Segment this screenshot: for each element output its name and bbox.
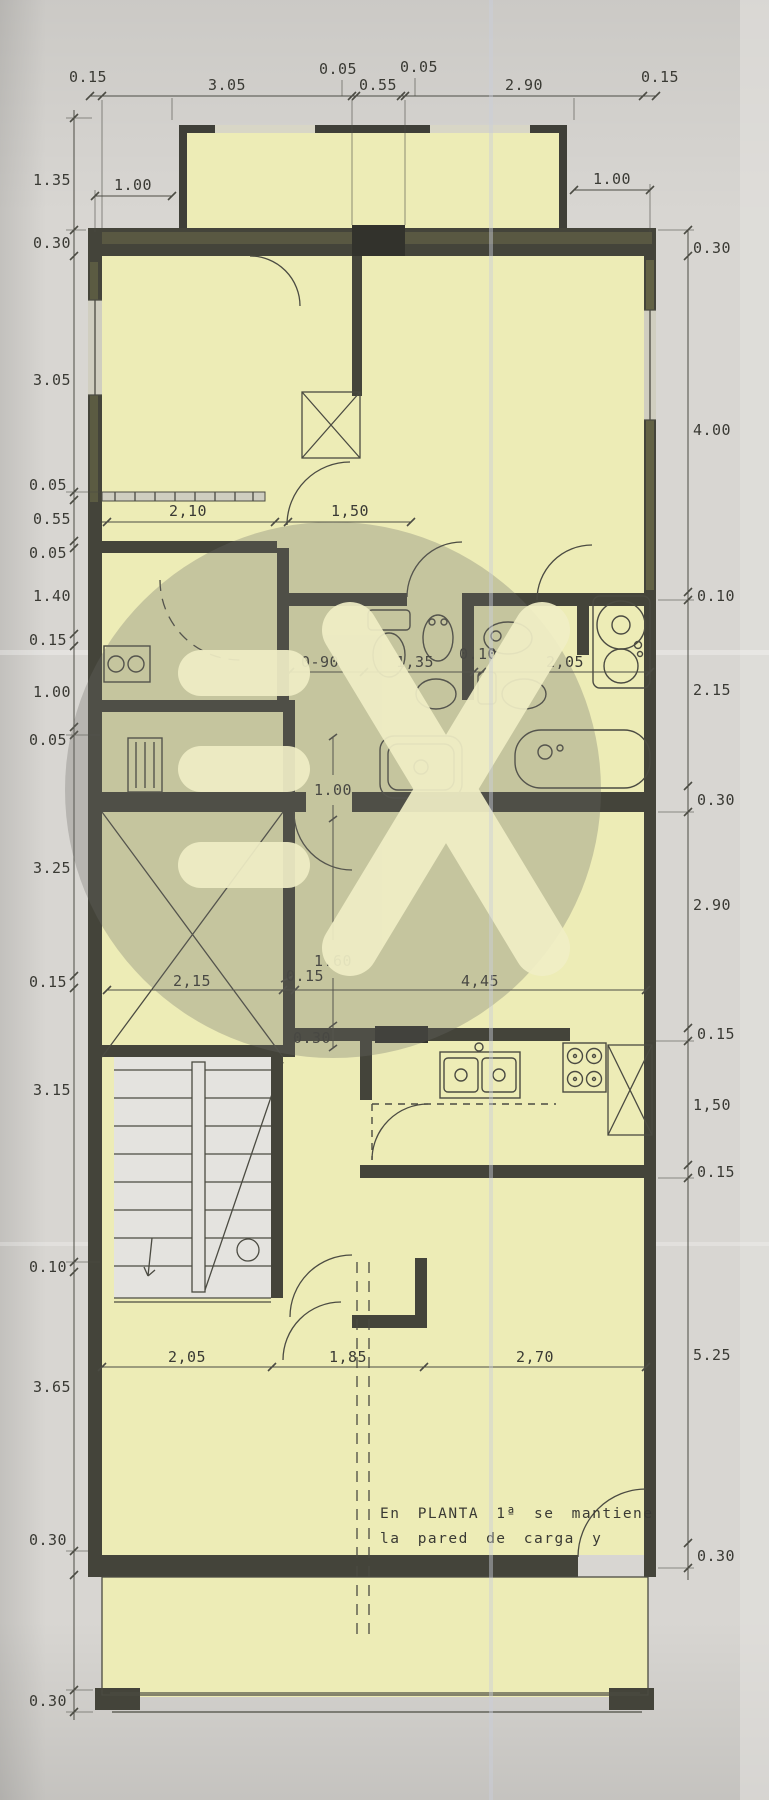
plan-note-line1: En PLANTA 1ª se mantiene (380, 1506, 654, 1522)
rear-wall-left (90, 1555, 578, 1577)
dim-label: 0.15 (29, 631, 67, 649)
stair-top-wall (102, 1045, 283, 1057)
dim-label: 3.65 (33, 1378, 71, 1396)
dim-label: 3.25 (33, 859, 71, 877)
dim-label: 1.35 (33, 171, 71, 189)
dim-label: 1.00 (593, 170, 631, 188)
rear-wall-right (646, 1555, 656, 1577)
vestibule-wall-stub (415, 1258, 427, 1328)
dim-label: 3.05 (208, 76, 246, 94)
watermark-circle (65, 522, 601, 1058)
dim-label: 3.05 (33, 371, 71, 389)
dim-label: 0.55 (33, 510, 71, 528)
dim-label: 2,70 (516, 1348, 554, 1366)
bedroom-divider-wall (352, 256, 362, 396)
stair-right-wall (271, 1057, 283, 1298)
watermark (65, 522, 601, 1058)
dim-label: 2.90 (505, 76, 543, 94)
dim-label: 0.05 (319, 60, 357, 78)
paper-fold-crease-vertical (489, 0, 493, 1800)
dim-label: 0.15 (29, 973, 67, 991)
dim-label: 0.30 (29, 1531, 67, 1549)
dim-label: 0.05 (400, 58, 438, 76)
dim-label: 1,50 (693, 1096, 731, 1114)
dim-label: 0.05 (29, 544, 67, 562)
dim-label: 0.10 (29, 1258, 67, 1276)
dim-label: 0.30 (697, 791, 735, 809)
bath-lobby-wall (577, 606, 589, 655)
dim-label: 0.55 (359, 76, 397, 94)
bay-window-left (215, 125, 315, 133)
dim-label: 1.00 (114, 176, 152, 194)
terrace-stub-right (609, 1688, 654, 1710)
dim-label: 1.40 (33, 587, 71, 605)
dim-label: 0.05 (29, 731, 67, 749)
dim-label: 2.90 (693, 896, 731, 914)
dim-label: 0.15 (697, 1025, 735, 1043)
dim-label: 1,85 (329, 1348, 367, 1366)
dim-label: 1.00 (33, 683, 71, 701)
bay-room-area (179, 125, 567, 230)
floor-plan-drawing: 0.15 3.05 0.05 0.55 0.05 2.90 0.15 1.00 … (0, 0, 769, 1800)
dim-label: 0.30 (33, 234, 71, 252)
facade-pillar (352, 225, 405, 256)
bay-window-right (430, 125, 530, 133)
terrace-area (102, 1577, 648, 1697)
dim-label: 0.15 (641, 68, 679, 86)
dim-label: 0.15 (69, 68, 107, 86)
dim-label: 0.30 (693, 239, 731, 257)
kitchen-bottom-wall (360, 1165, 656, 1178)
dim-label: 0.30 (697, 1547, 735, 1565)
dim-label: 3.15 (33, 1081, 71, 1099)
dim-label: 1,50 (331, 502, 369, 520)
dim-label: 2,10 (169, 502, 207, 520)
dim-label: 0.05 (29, 476, 67, 494)
dim-label: 4.00 (693, 421, 731, 439)
dim-label: 2.15 (693, 681, 731, 699)
dim-label: 0.10 (697, 587, 735, 605)
wardrobe-partition (102, 492, 265, 501)
dim-label: 0.30 (29, 1692, 67, 1710)
dim-label: 0.15 (697, 1163, 735, 1181)
staircase (114, 1057, 283, 1302)
dim-label: 5.25 (693, 1346, 731, 1364)
dim-label: 2,05 (168, 1348, 206, 1366)
scanned-floor-plan-page: 0.15 3.05 0.05 0.55 0.05 2.90 0.15 1.00 … (0, 0, 769, 1800)
